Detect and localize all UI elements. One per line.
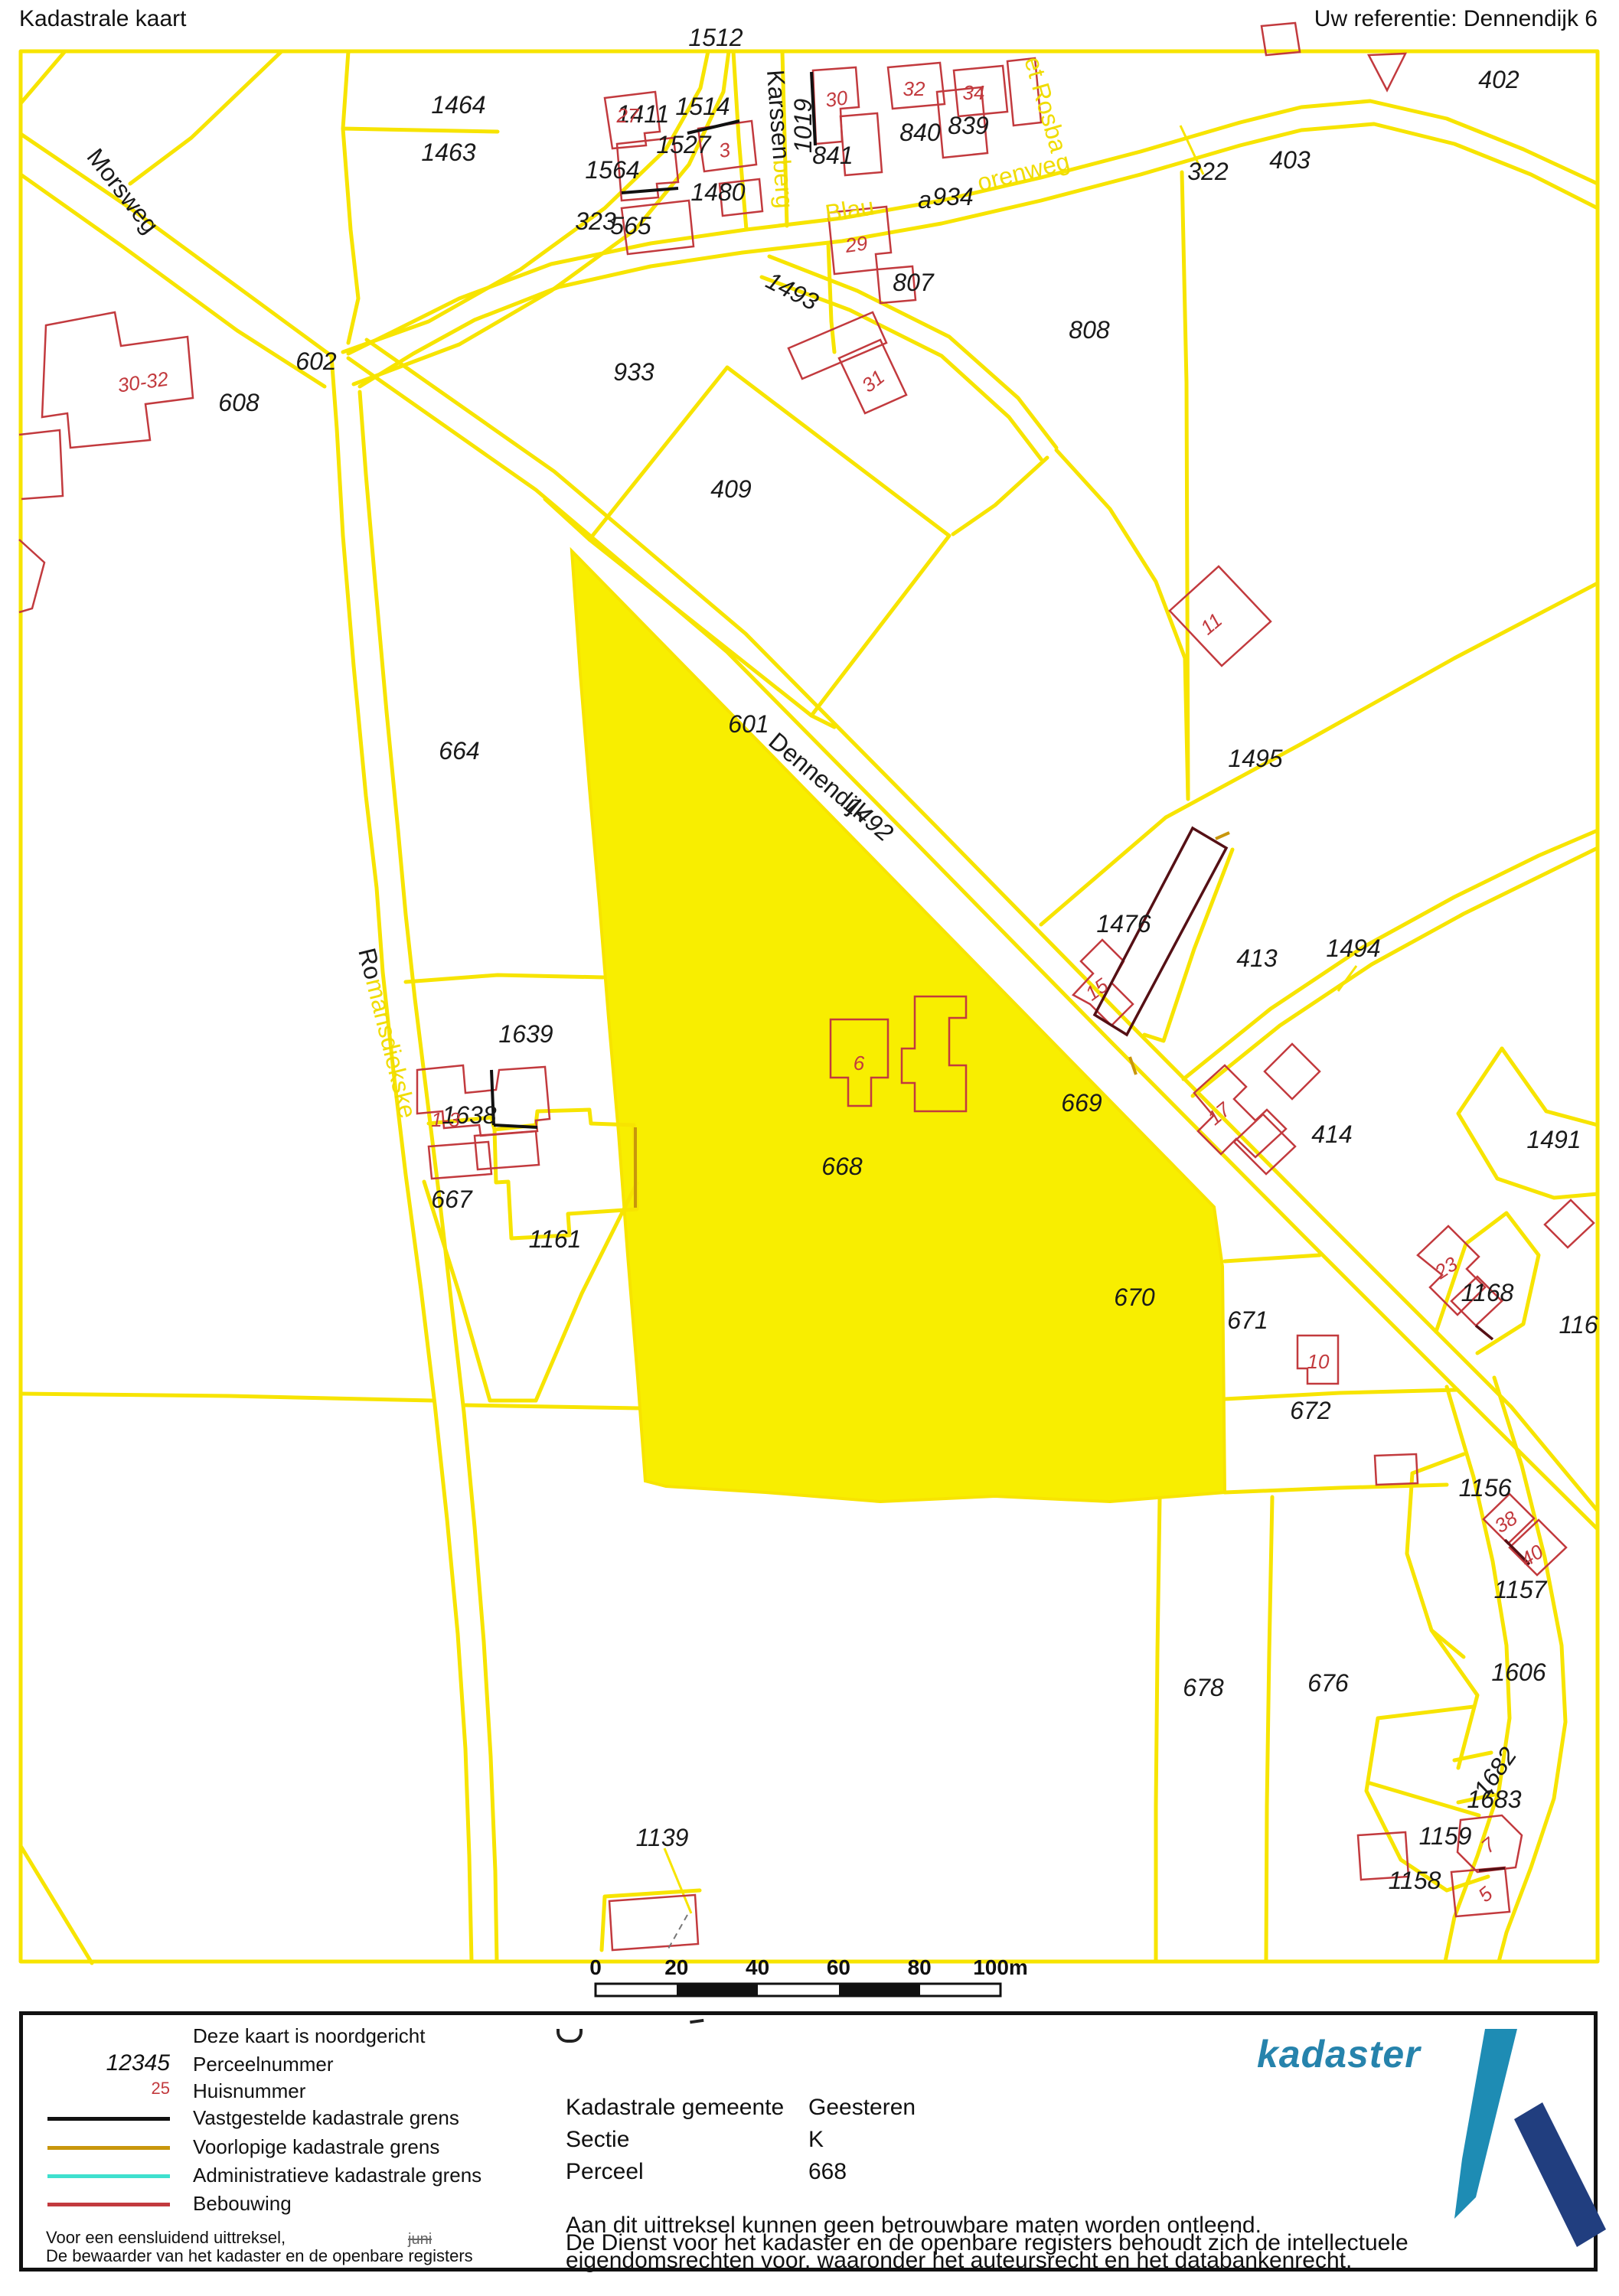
scale-tick-60: 60 [827, 1955, 850, 1979]
road-name-Blau: Blau [823, 192, 876, 227]
erased-text-fragment2 [690, 2019, 705, 2031]
house-number-32: 32 [903, 77, 925, 100]
parcel-label-1494: 1494 [1326, 934, 1380, 962]
parcel-label-933: 933 [613, 358, 654, 386]
parcel-label-601: 601 [728, 710, 769, 738]
house-number-sample: 25 [47, 2079, 170, 2099]
info-gemeente-label: Kadastrale gemeente [566, 2095, 784, 2121]
parcel-label-602: 602 [295, 347, 337, 375]
parcel-label-409: 409 [710, 475, 752, 503]
parcel-label-808: 808 [1069, 316, 1110, 344]
parcel-label-565: 565 [610, 212, 651, 240]
parcel-label-667: 667 [431, 1186, 473, 1213]
parcel-label-1480: 1480 [690, 178, 745, 206]
scale-tick-80: 80 [908, 1955, 932, 1979]
parcel-label-678: 678 [1183, 1674, 1224, 1701]
parcel-label-1495: 1495 [1228, 745, 1282, 772]
parcel-label-670: 670 [1114, 1283, 1155, 1311]
house-number-38: 38 [1490, 1506, 1522, 1538]
parcel-label-1168: 1168 [1461, 1279, 1514, 1306]
footer-panel: juni Deze kaart is noordgericht 12345 Pe… [19, 2011, 1598, 2272]
disclaimer-line-3: eigendomsrechten voor, waaronder het aut… [566, 2248, 1352, 2274]
erased-text-fragment [557, 2029, 583, 2043]
house-number-3: 3 [717, 138, 733, 162]
parcel-label-1139: 1139 [636, 1824, 689, 1851]
parcel-label-608: 608 [218, 389, 259, 416]
parcel-label-1158: 1158 [1389, 1867, 1441, 1894]
road-name-1019: 1019 [789, 99, 817, 153]
info-perceel-label: Perceel [566, 2159, 644, 2185]
house-number-34: 34 [963, 81, 985, 104]
parcel-label-403: 403 [1269, 146, 1311, 174]
legend-house-number: Huisnummer [193, 2079, 305, 2103]
house-number-30: 30 [824, 86, 849, 112]
parcel-label-1606: 1606 [1491, 1658, 1546, 1686]
provisional-boundary-swatch [47, 2146, 170, 2150]
scale-tick-0: 0 [589, 1955, 602, 1979]
cadastral-map[interactable]: 1512146414631411151415271564148032356584… [0, 0, 1619, 2009]
road-name-et-Rosba: et Rosba [1019, 54, 1072, 155]
parcel-label-934: 934 [932, 183, 973, 210]
parcel-label-668: 668 [821, 1153, 863, 1180]
parcel-label-669: 669 [1061, 1089, 1102, 1117]
parcel-label-841: 841 [812, 142, 853, 169]
parcel-label-1564: 1564 [585, 156, 639, 184]
house-number-29: 29 [843, 231, 869, 257]
info-sectie-label: Sectie [566, 2127, 629, 2153]
house-number-30-32: 30-32 [116, 367, 171, 397]
legend-established: Vastgestelde kadastrale grens [193, 2106, 459, 2130]
attest-line-2: De bewaarder van het kadaster en de open… [46, 2246, 473, 2266]
parcel-label-807: 807 [893, 269, 935, 296]
kadaster-logo-mark [1424, 2021, 1615, 2266]
house-number-31: 31 [857, 365, 889, 396]
house-number-11: 11 [1196, 608, 1226, 639]
legend-parcel-number: Perceelnummer [193, 2053, 334, 2076]
parcel-label-322: 322 [1187, 158, 1229, 185]
parcel-label-1159: 1159 [1419, 1822, 1472, 1850]
parcel-label-1527: 1527 [656, 131, 711, 158]
parcel-label-1157: 1157 [1494, 1576, 1548, 1603]
kadaster-logo-text: kadaster [1257, 2032, 1421, 2076]
road-name-orenweg: orenweg [974, 147, 1072, 197]
parcel-label-a: a [918, 186, 932, 214]
north-note: Deze kaart is noordgericht [193, 2024, 425, 2048]
selected-parcel-668[interactable] [572, 551, 1225, 1502]
parcel-label-414: 414 [1311, 1120, 1352, 1148]
parcel-label-1683: 1683 [1467, 1786, 1521, 1813]
info-perceel-value: 668 [808, 2159, 847, 2185]
parcel-label-1464: 1464 [431, 91, 485, 119]
parcel-label-664: 664 [439, 737, 479, 765]
info-gemeente-value: Geesteren [808, 2095, 916, 2121]
parcel-label-672: 672 [1290, 1397, 1331, 1424]
parcel-label-1491: 1491 [1526, 1126, 1581, 1153]
parcel-label-1639: 1639 [498, 1020, 553, 1048]
scale-tick-20: 20 [664, 1955, 688, 1979]
administrative-boundary-swatch [47, 2174, 170, 2178]
legend-building: Bebouwing [193, 2192, 292, 2216]
legend-administrative: Administratieve kadastrale grens [193, 2164, 481, 2187]
house-number-1-3: 1-3 [431, 1108, 460, 1131]
parcel-label-671: 671 [1227, 1306, 1268, 1334]
parcel-label-1512: 1512 [688, 24, 743, 51]
scale-tick-100m: 100m [973, 1955, 1028, 1979]
building-swatch [47, 2203, 170, 2206]
parcel-number-sample: 12345 [47, 2050, 170, 2076]
parcel-label-1463: 1463 [421, 139, 475, 166]
house-number-23: 23 [1430, 1252, 1462, 1284]
page: { "header": { "title": "Kadastrale kaart… [0, 0, 1619, 2296]
house-number-6: 6 [854, 1052, 865, 1075]
established-boundary-swatch [47, 2117, 170, 2121]
parcel-label-676: 676 [1307, 1669, 1349, 1697]
info-sectie-value: K [808, 2127, 824, 2153]
parcel-label-1476: 1476 [1096, 910, 1151, 938]
house-number-7: 7 [1477, 1832, 1501, 1857]
parcel-label-413: 413 [1236, 944, 1278, 972]
legend-provisional: Voorlopige kadastrale grens [193, 2135, 439, 2159]
house-number-10: 10 [1307, 1350, 1330, 1373]
parcel-label-116: 116 [1559, 1311, 1598, 1339]
scale-tick-40: 40 [746, 1955, 769, 1979]
parcel-label-402: 402 [1478, 66, 1519, 93]
parcel-label-1161: 1161 [529, 1225, 582, 1253]
parcel-label-1514: 1514 [675, 93, 730, 120]
parcel-label-1156: 1156 [1459, 1474, 1512, 1502]
parcel-label-839: 839 [948, 112, 989, 139]
parcel-label-840: 840 [899, 119, 941, 146]
attest-line-1: Voor een eensluidend uittreksel, [46, 2228, 286, 2248]
scale-tick-labels: 020406080100m [589, 1955, 1028, 1979]
house-number-5: 5 [1474, 1882, 1497, 1907]
house-number-27: 27 [616, 104, 640, 127]
